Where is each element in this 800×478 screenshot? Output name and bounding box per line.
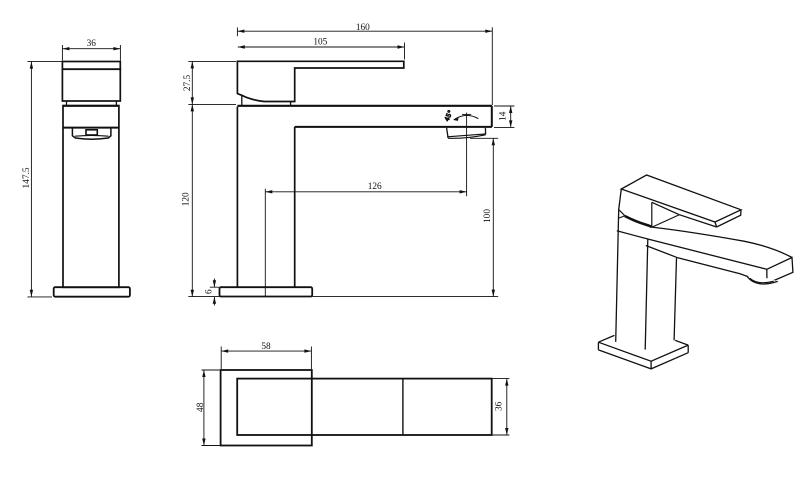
svg-text:27.5: 27.5 [183,75,193,92]
svg-text:36: 36 [495,401,505,411]
svg-text:45°: 45° [444,109,455,122]
svg-text:58: 58 [261,342,271,352]
svg-text:48: 48 [196,402,206,412]
svg-text:36: 36 [87,39,97,49]
svg-text:147.5: 147.5 [22,167,32,188]
svg-text:100: 100 [483,209,493,223]
svg-text:120: 120 [182,192,192,206]
svg-text:160: 160 [356,23,370,33]
svg-text:14: 14 [499,111,509,121]
svg-text:126: 126 [368,182,382,192]
svg-text:105: 105 [313,37,327,47]
svg-text:6: 6 [204,289,214,294]
